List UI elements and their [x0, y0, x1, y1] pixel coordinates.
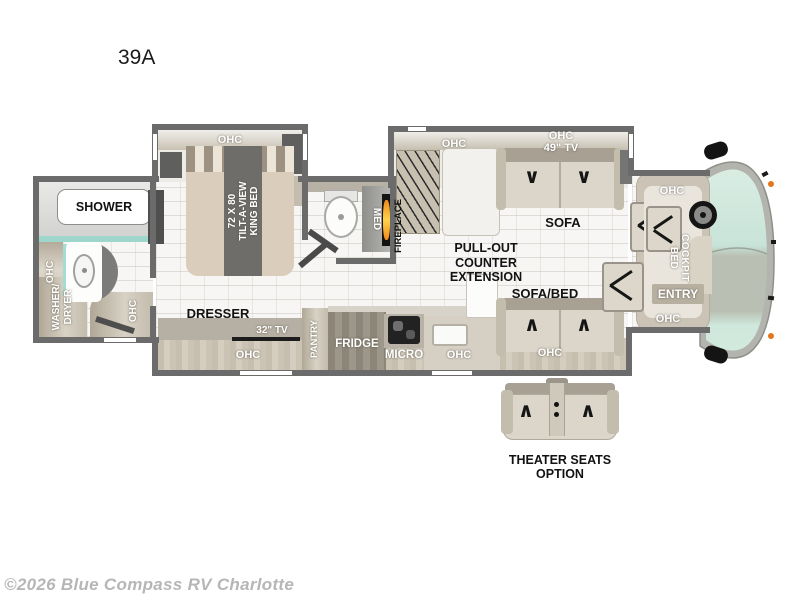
shower-label: SHOWER [57, 200, 151, 214]
sofa-bed-divider [559, 310, 561, 352]
window-bottom-dresser [240, 371, 292, 375]
ohc-49tv-label: OHC 49" TV [521, 130, 601, 154]
micro-label: MICRO [380, 349, 428, 361]
tv-32-bar [232, 337, 300, 341]
sofa-bed-stitch-mark: ∧ [572, 314, 596, 334]
theater-console [549, 383, 565, 436]
window-bath-bottom [104, 338, 136, 342]
cupholder-icon [554, 412, 559, 417]
sink-drain-icon [82, 268, 87, 273]
steering-hub-icon [700, 212, 706, 218]
window-bedslide-left [153, 134, 157, 160]
cab-ohc-bottom-label: OHC [646, 313, 690, 325]
swivel-chair [602, 262, 644, 312]
wall-toilet-bottom [336, 258, 396, 264]
pantry-label: PANTRY [309, 311, 321, 367]
model-label: 39A [118, 46, 155, 70]
theater-arm-left [501, 390, 513, 434]
sofa-stitch-mark: ∨ [520, 166, 544, 186]
wall-bottom-main [152, 370, 632, 376]
wall-bottom-cab [626, 327, 710, 333]
window-bottom-sink [432, 371, 472, 375]
sofa-bed-ohc-label: OHC [527, 347, 573, 359]
cupholder-icon [554, 402, 559, 407]
cockpit-bed-label: COCKPIT BED [668, 221, 690, 295]
kitchen-sink-icon [432, 324, 468, 346]
copyright-text: ©2026 Blue Compass RV Charlotte [4, 575, 294, 595]
fireplace-label: FIREPLACE [393, 187, 405, 265]
living-ohc-label: OHC [428, 138, 480, 150]
med-label: MED [370, 202, 382, 236]
tv-32-label: 32" TV [244, 325, 300, 336]
sofa-divider [559, 162, 561, 208]
wall-bath-partition-upper [150, 182, 156, 278]
bedroom-corner-cab-left [160, 152, 182, 178]
sink-ohc-label: OHC [436, 349, 482, 361]
wall-toilet-left [302, 182, 308, 240]
cooktop-burner2-icon [406, 330, 415, 339]
wall-step-right [626, 327, 632, 376]
sofa-bed-stitch-mark: ∧ [520, 314, 544, 334]
wall-top-mid [298, 176, 396, 182]
floorplan-page: { "model_label": "39A", "copyright": "©2… [0, 0, 800, 600]
window-livslide-top [408, 127, 426, 131]
cooktop-burner-icon [393, 321, 403, 331]
fireplace-flame-icon [383, 200, 390, 240]
bath-corner-ohc-label: OHC [128, 293, 140, 329]
theater-stitch-mark: ∧ [514, 400, 538, 420]
wall-rear [33, 176, 39, 343]
bed-label: 72 X 80 TILT-A-VIEW KING BED [226, 151, 260, 271]
wall-bedslide-top [152, 124, 308, 130]
theater-stitch-mark: ∧ [576, 400, 600, 420]
window-livslide-right [629, 134, 633, 158]
living-white-cabinet [442, 148, 500, 236]
theater-label: THEATER SEATS OPTION [495, 454, 625, 481]
fridge-label: FRIDGE [328, 338, 386, 350]
sofa-stitch-mark: ∨ [572, 166, 596, 186]
wall-bath-partition-lower [150, 306, 156, 340]
sofa-bed-label: SOFA/BED [503, 286, 587, 301]
cab-ohc-label: OHC [650, 185, 694, 197]
dresser-ohc-label: OHC [226, 349, 270, 361]
dresser-label: DRESSER [162, 306, 274, 321]
wall-bottom-bath [33, 337, 159, 343]
wall-top-bath [33, 176, 159, 182]
sofa-label: SOFA [523, 215, 603, 230]
sofa-bed-arm-left [496, 298, 506, 356]
toilet-drain-icon [338, 214, 344, 220]
theater-arm-right [607, 390, 619, 434]
wall-top-cab [632, 170, 710, 176]
bedroom-ohc-label: OHC [200, 134, 260, 146]
pullout-counter-label: PULL-OUT COUNTER EXTENSION [426, 241, 546, 285]
sofa-arm-left [496, 148, 506, 210]
window-bedslide-right [303, 134, 307, 160]
washer-dryer-label: WASHER/ DRYER [51, 277, 75, 337]
